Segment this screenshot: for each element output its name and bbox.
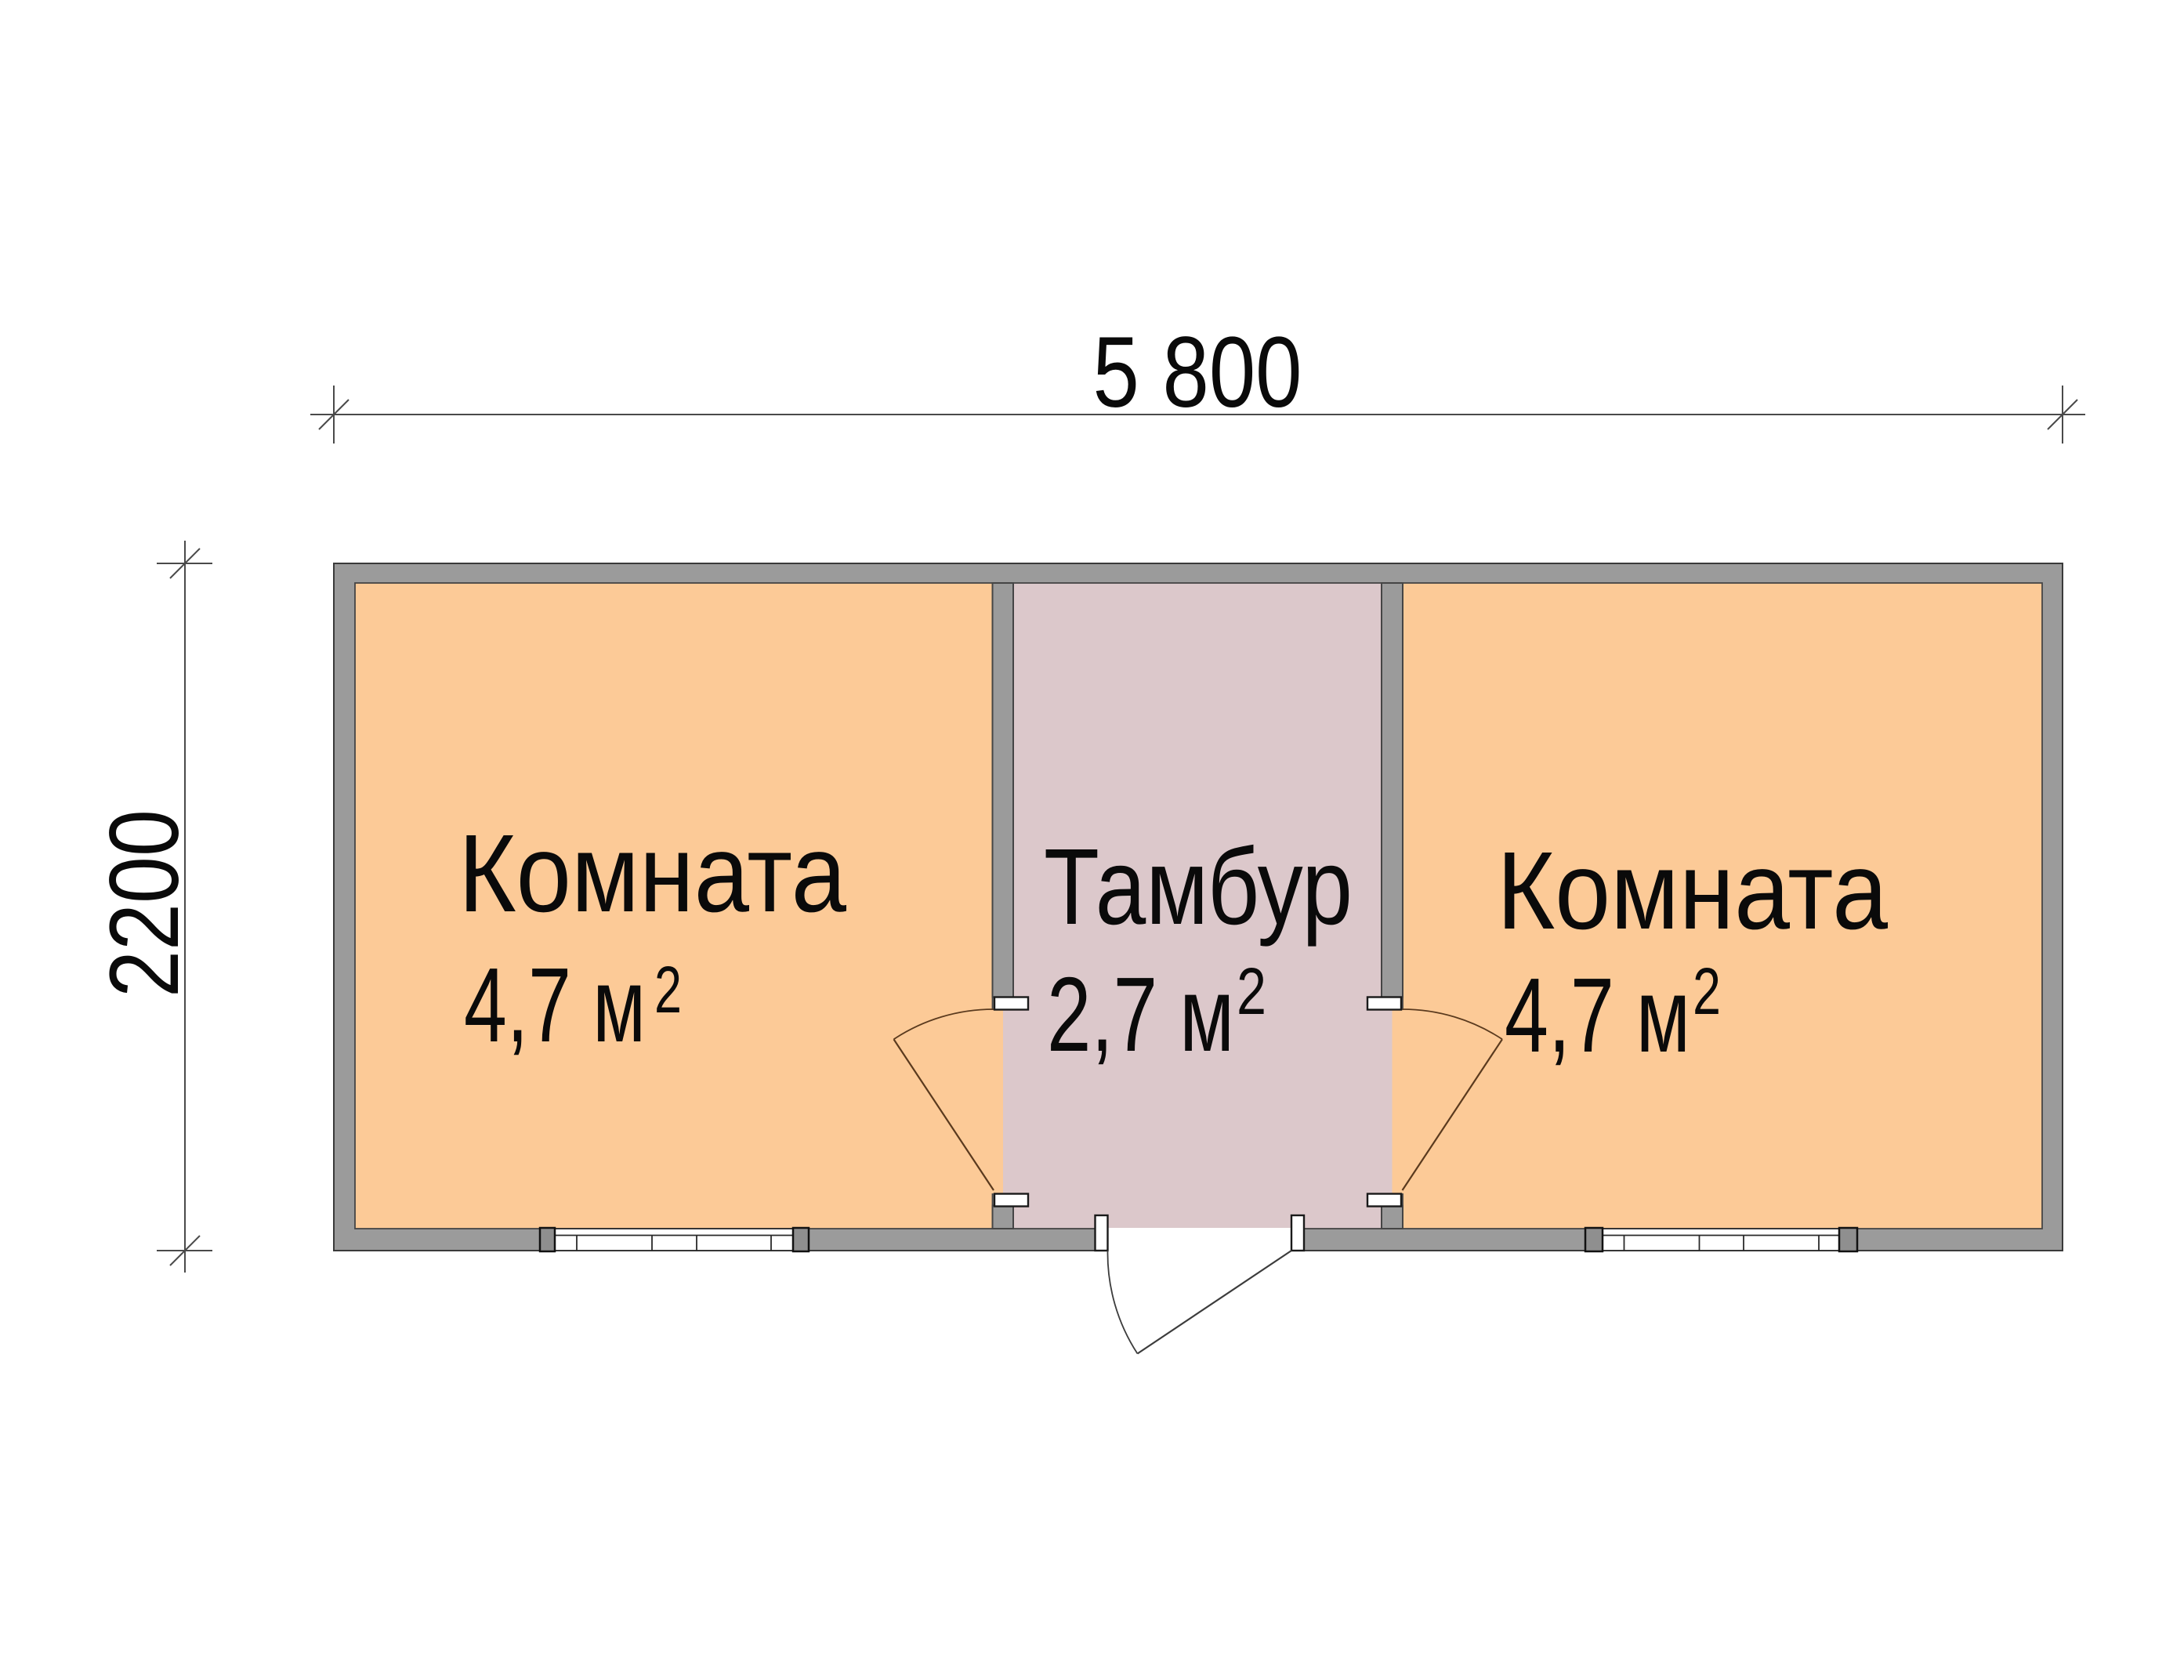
svg-text:4,7 м: 4,7 м bbox=[464, 946, 646, 1064]
svg-text:2,7 м: 2,7 м bbox=[1047, 955, 1234, 1074]
svg-text:Тамбур: Тамбур bbox=[1044, 827, 1353, 947]
svg-text:4,7 м: 4,7 м bbox=[1505, 956, 1690, 1074]
svg-text:2200: 2200 bbox=[90, 809, 199, 997]
svg-text:Комната: Комната bbox=[458, 811, 847, 935]
svg-text:2: 2 bbox=[1237, 954, 1266, 1028]
svg-text:5 800: 5 800 bbox=[1093, 317, 1302, 429]
svg-text:2: 2 bbox=[1693, 954, 1721, 1028]
svg-text:2: 2 bbox=[654, 953, 682, 1026]
svg-text:Комната: Комната bbox=[1497, 828, 1889, 952]
